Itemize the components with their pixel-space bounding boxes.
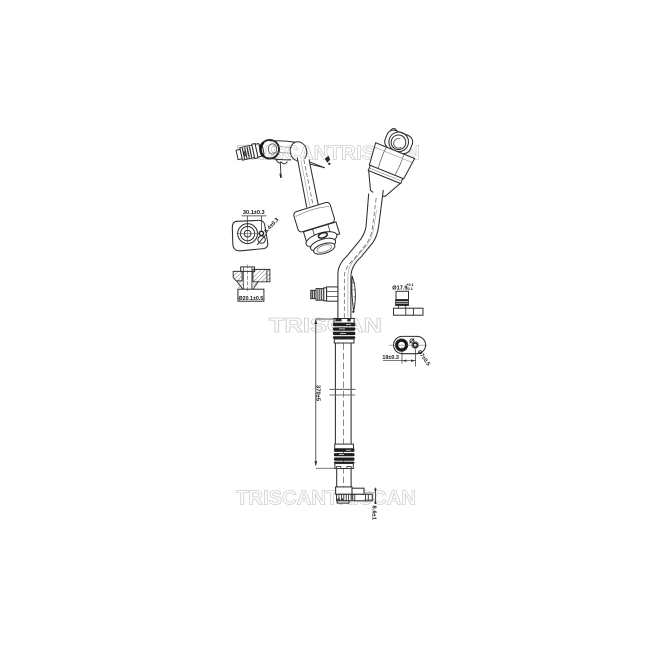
svg-text:370±5: 370±5 bbox=[314, 385, 320, 402]
svg-text:TRISCAN: TRISCAN bbox=[269, 315, 382, 337]
svg-text:8.6±1: 8.6±1 bbox=[371, 506, 377, 521]
svg-text:TRISCANTRISCAN: TRISCANTRISCAN bbox=[236, 488, 416, 510]
svg-text:Ø17.9: Ø17.9 bbox=[392, 286, 407, 292]
svg-text:30.1±0.3: 30.1±0.3 bbox=[243, 210, 265, 216]
svg-text:Ø20.1±0.5: Ø20.1±0.5 bbox=[239, 296, 264, 302]
svg-text:19±0.3: 19±0.3 bbox=[382, 355, 398, 361]
svg-text:-0.1: -0.1 bbox=[406, 287, 413, 291]
